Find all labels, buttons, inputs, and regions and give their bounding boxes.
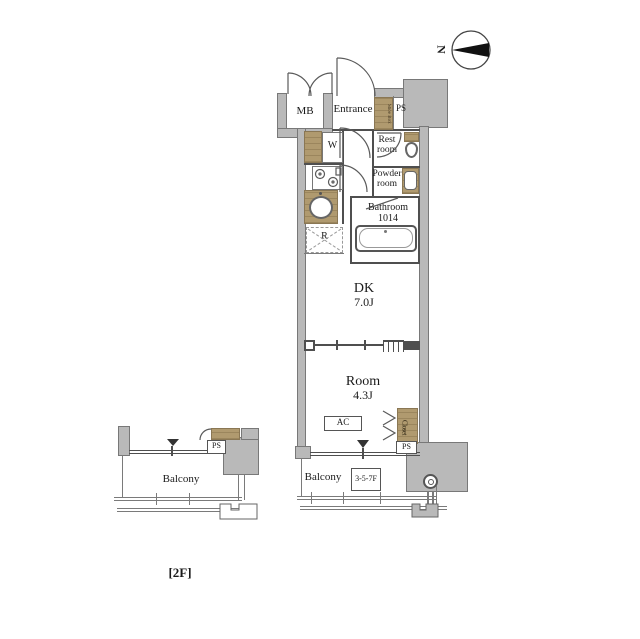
wall-under-washer (304, 163, 344, 165)
mb-door-leaves (288, 73, 332, 94)
entrance-door-arc (337, 58, 375, 96)
ac-label: AC (324, 418, 362, 428)
unit-left-wall (298, 129, 305, 458)
block-pipe-b (432, 491, 434, 506)
balcony-wall-stub-left (296, 447, 310, 458)
railing-l-tick2 (189, 493, 190, 505)
balcony-label: Balcony (297, 472, 349, 484)
room-label-1: Room (338, 374, 388, 389)
railing-r-vert (436, 486, 437, 508)
left-balcony-left-edge (122, 455, 123, 498)
linen-shelf (304, 131, 322, 163)
railing-r1 (297, 496, 437, 497)
closet-bifold-doors (383, 411, 395, 440)
toilet-tank (404, 132, 419, 142)
railing-l4 (117, 511, 250, 512)
bathtub-faucet (384, 230, 387, 233)
washer-label: W (322, 141, 343, 152)
compass-needle (452, 43, 489, 57)
left-unit-window-tick (171, 446, 173, 456)
corridor-door1-arc (340, 128, 370, 158)
compass-letter: N (435, 41, 448, 57)
partition-tick-2 (364, 340, 366, 350)
room-label-2: 4.3J (338, 389, 388, 402)
powder-room-label-2: room (368, 179, 406, 189)
dk-label-1: DK (340, 281, 388, 296)
compass-circle (452, 31, 490, 69)
partition-tick-1 (336, 340, 338, 350)
left-ps-label: PS (207, 442, 226, 451)
plan-symbols (0, 0, 640, 639)
toilet-bowl (405, 142, 418, 158)
left-unit-wall-stub (119, 427, 129, 455)
shoe-box-label: Shoe Box (376, 99, 391, 128)
left-balcony-pipe-b (244, 474, 245, 500)
balcony-door-tick (362, 448, 364, 459)
mb-label: MB (286, 106, 324, 118)
stove (312, 166, 343, 190)
left-unit-block-step (242, 429, 258, 439)
ps-top-label: PS (390, 104, 412, 114)
railing-r3 (300, 506, 447, 507)
bathroom-label-2: 1014 (360, 214, 416, 225)
dk-label-2: 7.0J (340, 296, 388, 309)
kitchen-counter-end (304, 253, 344, 254)
railing-r-tick1 (311, 492, 312, 504)
closet-label: Closet (400, 410, 408, 444)
partition-door-stack (383, 340, 404, 352)
left-balcony-marker-triangle (167, 439, 179, 446)
railing-r-tick3 (380, 492, 381, 504)
mb-door-right-arc (309, 73, 332, 96)
floor-plan: MB Entrance PS Shoe Box W Rest room Powd… (0, 0, 640, 639)
partition-track (315, 344, 383, 346)
floor-tag: [2F] (160, 566, 200, 580)
left-unit-window-b (129, 453, 208, 454)
partition-right-stub (404, 341, 420, 350)
rest-room-label-2: room (370, 145, 404, 155)
floors-box-label: 3-5-7F (351, 475, 381, 484)
unit-right-wall (420, 127, 428, 458)
partition-left-stub (304, 340, 315, 351)
railing-r4 (300, 509, 447, 510)
mb-door-left-arc (288, 73, 311, 96)
powder-room-label-1: Powder (368, 169, 406, 179)
kitchen-sink (309, 196, 333, 219)
railing-l3 (117, 508, 250, 509)
railing-r2 (297, 499, 437, 500)
railing-r-tick2 (343, 492, 344, 504)
balcony-door-line-b (310, 455, 420, 456)
drain-pipe-inner (428, 479, 434, 485)
block-pipe-a (427, 491, 429, 506)
rest-room-label-1: Rest (370, 135, 404, 145)
railing-l1 (114, 497, 242, 498)
left-unit-door-arc (200, 429, 211, 440)
railing-l-tick1 (156, 493, 157, 505)
left-unit-shelf (211, 428, 240, 440)
left-unit-block (224, 438, 258, 474)
fridge-label: R (306, 232, 343, 243)
railing-l2 (114, 500, 242, 501)
left-balcony-label: Balcony (155, 474, 207, 486)
kitchen-faucet (319, 192, 322, 195)
ps-bottom-label: PS (396, 443, 417, 452)
left-unit-window-a (129, 450, 208, 451)
corridor-door2-arc (340, 165, 367, 192)
balcony-marker-triangle (357, 440, 369, 448)
entrance-label: Entrance (330, 104, 376, 116)
top-wall-strip (375, 89, 405, 97)
